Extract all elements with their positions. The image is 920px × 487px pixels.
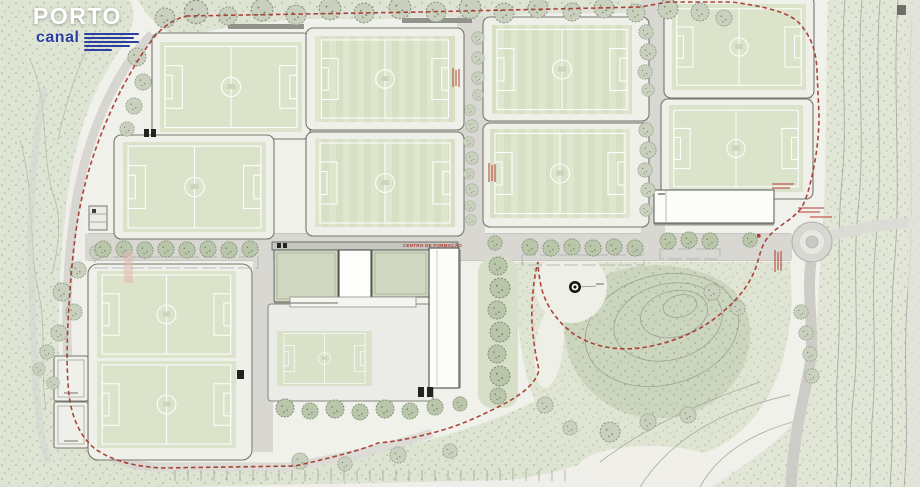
logo-canal-text: canal	[36, 30, 79, 46]
gate-building	[89, 206, 107, 230]
building-east-wing	[429, 248, 459, 388]
building-west-green-roof	[274, 250, 338, 302]
east-white-building	[654, 190, 774, 223]
roundabout	[792, 222, 832, 262]
building-central-white	[339, 250, 371, 304]
logo-porto-text: PORTO	[33, 5, 139, 28]
porto-canal-logo: PORTO canal	[33, 5, 139, 51]
trees-park-edge-column	[478, 257, 518, 408]
screen-edge	[908, 0, 920, 487]
building-east-green-roof	[372, 250, 429, 297]
logo-lines-icon	[84, 30, 139, 51]
broadcast-frame: CENTRO DE FORMAÇÃO	[0, 0, 920, 487]
centro-label: CENTRO DE FORMAÇÃO	[403, 242, 462, 248]
corner-watermark	[897, 5, 906, 15]
site-plan-drawing: CENTRO DE FORMAÇÃO	[0, 0, 920, 487]
training-centre: CENTRO DE FORMAÇÃO	[268, 242, 462, 401]
slope-hatching	[165, 461, 575, 483]
